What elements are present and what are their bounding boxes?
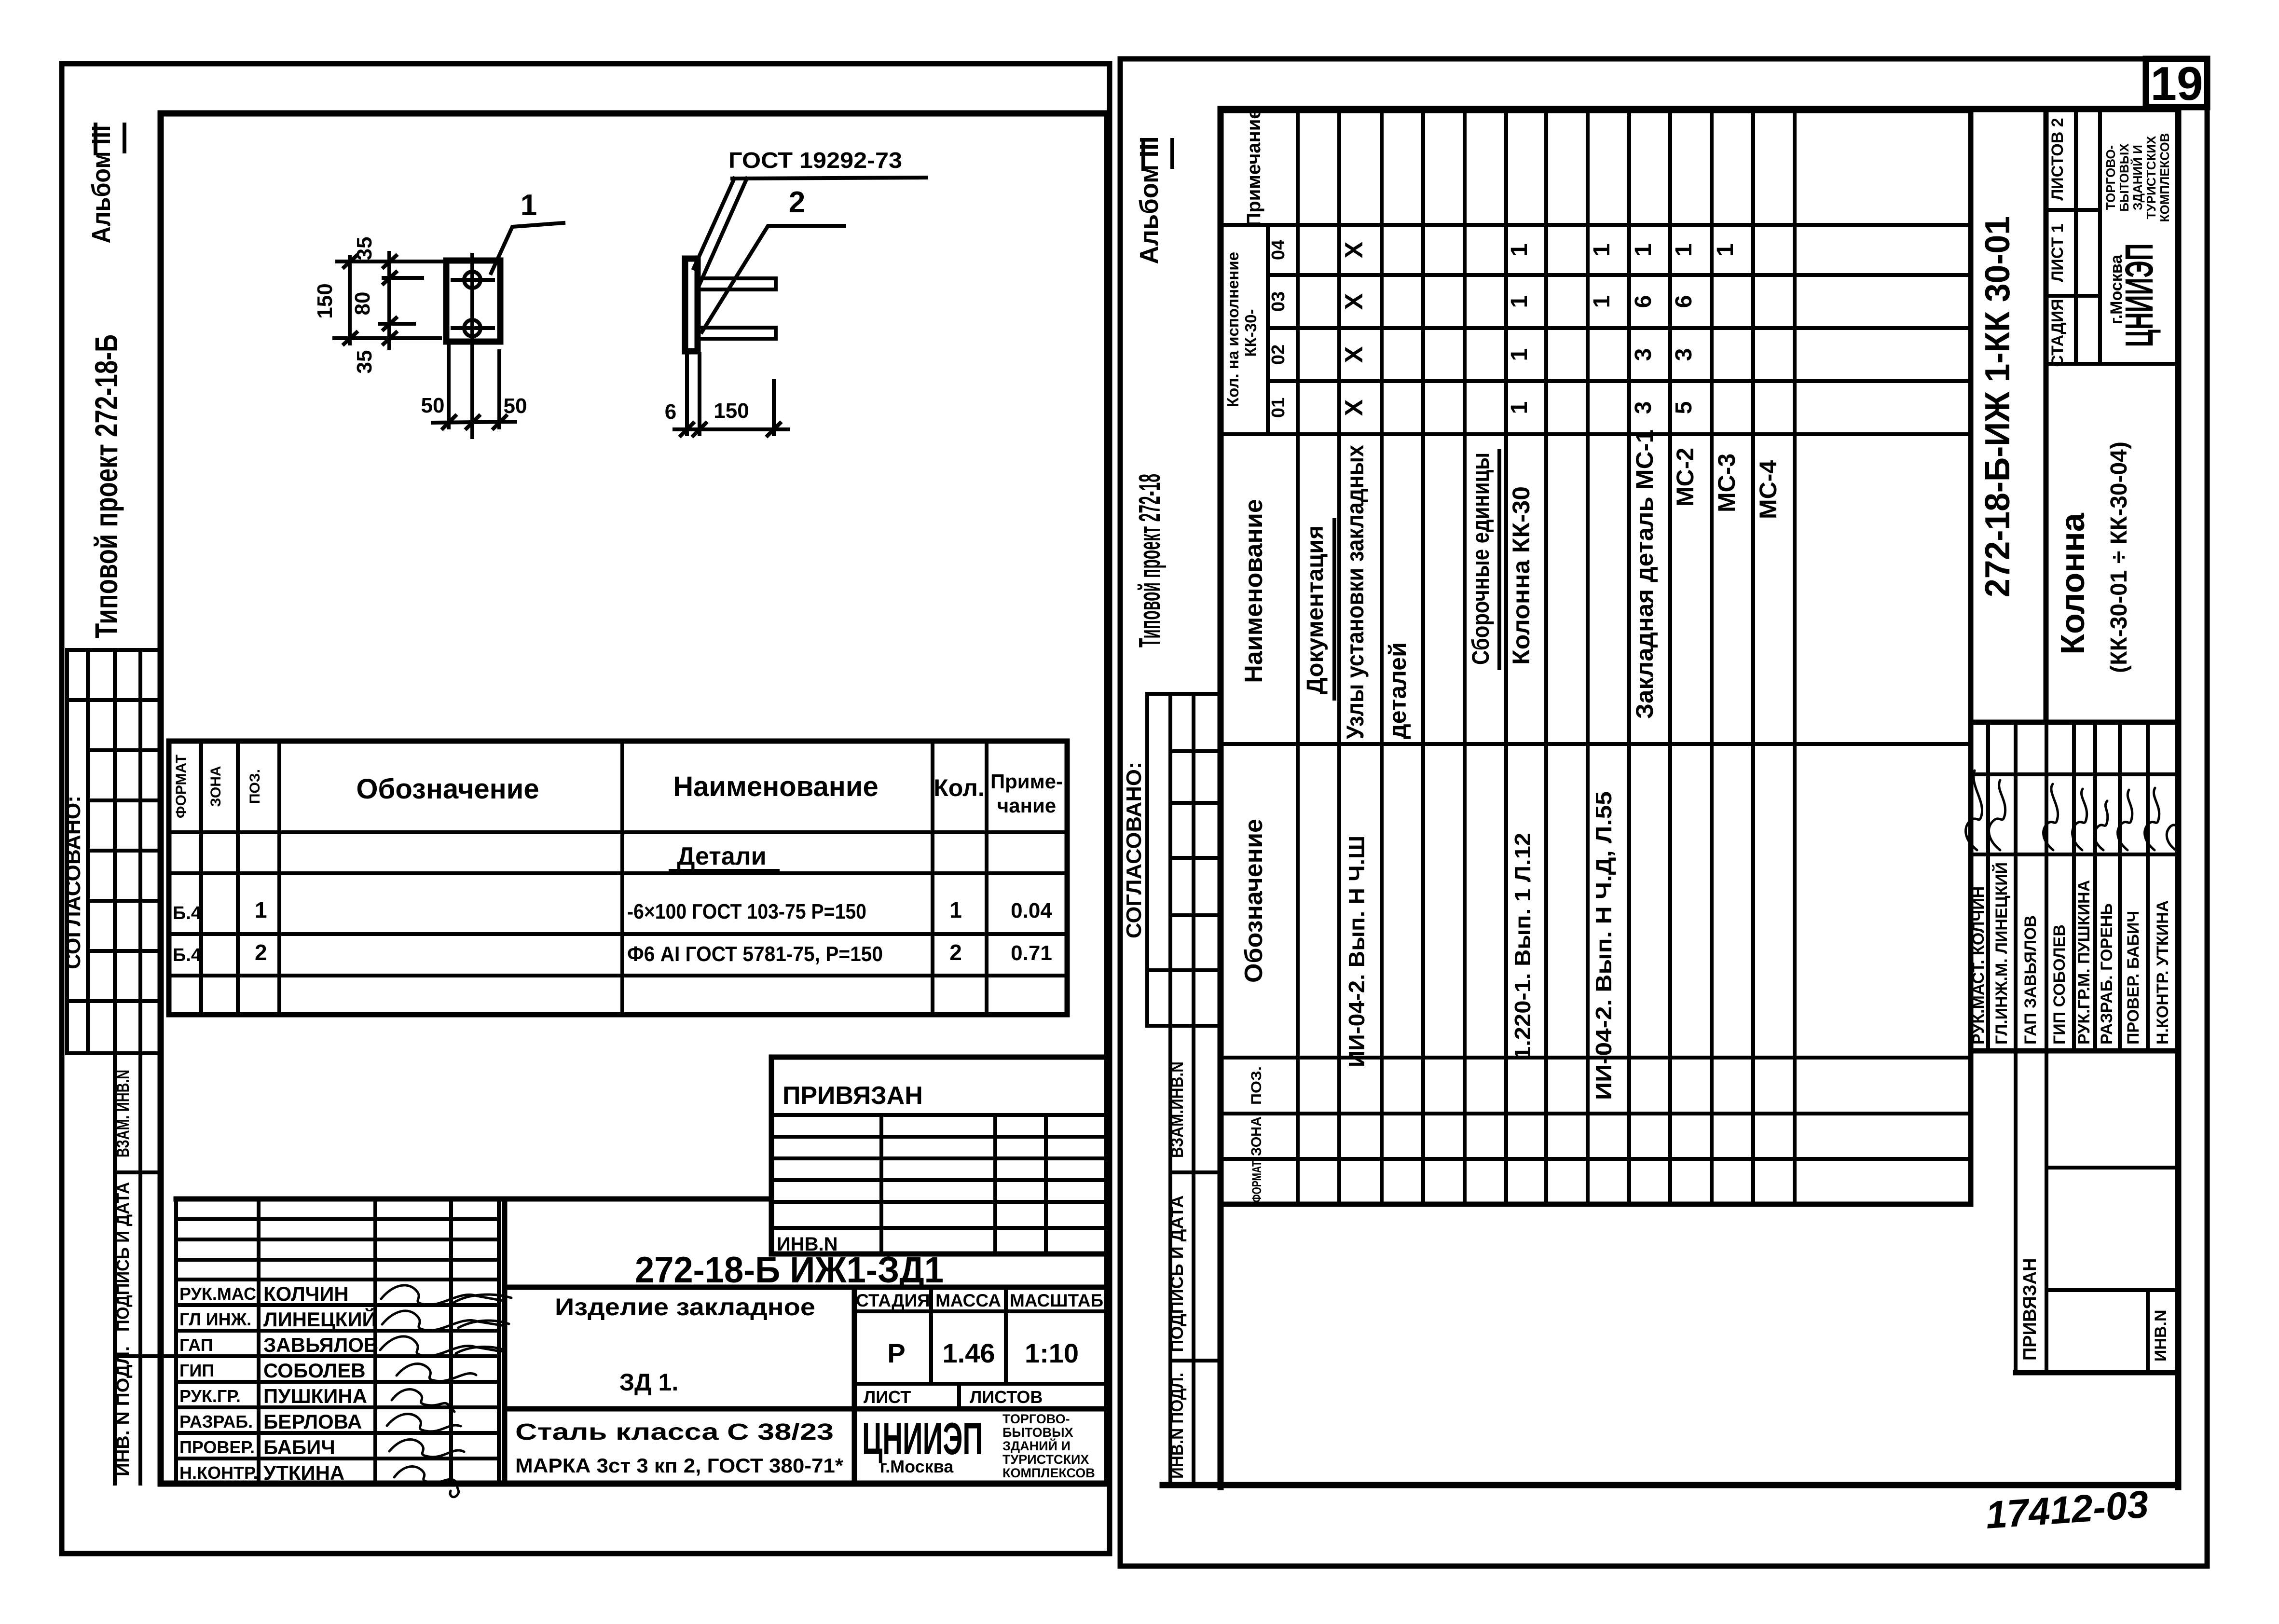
svg-text:Н.КОНТР.: Н.КОНТР. — [179, 1463, 258, 1483]
svg-text:ПРИВЯЗАН: ПРИВЯЗАН — [2020, 1258, 2040, 1361]
svg-text:ЗАВЬЯЛОВ: ЗАВЬЯЛОВ — [263, 1334, 378, 1356]
svg-text:1: 1 — [949, 897, 962, 922]
svg-text:БЫТОВЫХ: БЫТОВЫХ — [2117, 143, 2131, 212]
svg-text:Приме-: Приме- — [990, 770, 1063, 793]
svg-text:СТАДИЯ: СТАДИЯ — [2048, 299, 2067, 367]
svg-text:РУК.МАС.: РУК.МАС. — [179, 1284, 261, 1304]
svg-text:РУК.ГР.М. ПУШКИНА: РУК.ГР.М. ПУШКИНА — [2075, 880, 2093, 1045]
svg-text:X: X — [1340, 346, 1368, 363]
svg-text:Сборочные единицы: Сборочные единицы — [1467, 453, 1494, 665]
svg-text:80: 80 — [351, 292, 374, 316]
svg-text:ФОРМАТ: ФОРМАТ — [173, 755, 189, 818]
svg-text:3: 3 — [1671, 348, 1697, 361]
svg-text:г.Москва: г.Москва — [880, 1457, 954, 1476]
svg-text:ГЛ.ИНЖ.М. ЛИНЕЦКИЙ: ГЛ.ИНЖ.М. ЛИНЕЦКИЙ — [1992, 862, 2011, 1045]
svg-text:1: 1 — [255, 897, 267, 922]
svg-text:2: 2 — [789, 186, 805, 219]
svg-text:ИИ-04-2. Вып. Н Ч.Ш: ИИ-04-2. Вып. Н Ч.Ш — [1344, 836, 1369, 1067]
svg-text:ЗДАНИЙ И: ЗДАНИЙ И — [1002, 1438, 1071, 1453]
svg-text:1: 1 — [521, 189, 537, 222]
svg-text:3: 3 — [1631, 401, 1656, 414]
svg-text:X: X — [1340, 399, 1368, 416]
svg-text:2: 2 — [255, 940, 267, 965]
svg-text:Наименование: Наименование — [1240, 499, 1268, 683]
svg-text:ИНВ. N ПОДЛ.: ИНВ. N ПОДЛ. — [113, 1346, 133, 1476]
svg-text:ТУРИСТСКИХ: ТУРИСТСКИХ — [2144, 136, 2158, 219]
svg-text:БЕРЛОВА: БЕРЛОВА — [263, 1410, 362, 1433]
svg-text:1: 1 — [1671, 244, 1697, 257]
svg-text:ПРОВЕР. БАБИЧ: ПРОВЕР. БАБИЧ — [2124, 911, 2142, 1045]
svg-text:150: 150 — [313, 283, 337, 318]
svg-text:МС-2: МС-2 — [1672, 448, 1699, 507]
svg-text:ЗД 1.: ЗД 1. — [619, 1369, 679, 1396]
svg-text:150: 150 — [714, 399, 749, 423]
svg-text:ПРОВЕР.: ПРОВЕР. — [179, 1437, 255, 1457]
svg-text:1: 1 — [1507, 348, 1532, 361]
svg-text:Колонна: Колонна — [2054, 512, 2091, 655]
svg-text:0.71: 0.71 — [1011, 941, 1052, 965]
svg-text:-6×100 ГОСТ 103-75 Р=150: -6×100 ГОСТ 103-75 Р=150 — [627, 900, 866, 923]
svg-text:РУК.ГР.: РУК.ГР. — [179, 1386, 241, 1406]
svg-text:ПРИВЯЗАН: ПРИВЯЗАН — [783, 1082, 923, 1110]
svg-text:1: 1 — [1589, 244, 1615, 257]
svg-text:Кол.: Кол. — [934, 774, 984, 801]
svg-text:ВЗАМ. ИНВ.N: ВЗАМ. ИНВ.N — [113, 1070, 133, 1157]
svg-text:Кол. на исполнение: Кол. на исполнение — [1224, 252, 1242, 407]
svg-text:КОМПЛЕКСОВ: КОМПЛЕКСОВ — [2157, 133, 2172, 222]
svg-text:1: 1 — [1631, 244, 1656, 257]
svg-text:1: 1 — [1713, 244, 1738, 257]
svg-text:6: 6 — [665, 400, 676, 424]
svg-text:ПОЗ.: ПОЗ. — [1249, 1066, 1264, 1105]
svg-text:Типовой проект 272-18-Б: Типовой проект 272-18-Б — [88, 334, 124, 638]
svg-text:Колонна КК-30: Колонна КК-30 — [1508, 486, 1535, 665]
svg-text:272-18-Б ИЖ1-ЗД1: 272-18-Б ИЖ1-ЗД1 — [635, 1250, 944, 1291]
svg-text:ЛИСТ 1: ЛИСТ 1 — [2048, 223, 2067, 282]
svg-text:ТОРГОВО-: ТОРГОВО- — [1002, 1412, 1070, 1426]
svg-text:КК-30-: КК-30- — [1242, 309, 1260, 357]
svg-text:СТАДИЯ: СТАДИЯ — [856, 1291, 930, 1310]
svg-text:6: 6 — [1671, 295, 1697, 308]
svg-text:КОЛЧИН: КОЛЧИН — [263, 1282, 349, 1305]
svg-text:35: 35 — [353, 237, 376, 261]
svg-text:Альбом III: Альбом III — [1135, 137, 1164, 264]
svg-text:чание: чание — [997, 794, 1056, 817]
svg-text:X: X — [1340, 293, 1368, 310]
svg-text:ГИП: ГИП — [179, 1361, 214, 1380]
svg-text:ФОРМАТ: ФОРМАТ — [1249, 1161, 1264, 1202]
svg-text:МС-4: МС-4 — [1755, 460, 1782, 519]
svg-text:ЛИНЕЦКИЙ: ЛИНЕЦКИЙ — [263, 1307, 377, 1331]
svg-text:ГАП: ГАП — [179, 1335, 213, 1355]
svg-text:1.46: 1.46 — [943, 1338, 995, 1368]
svg-text:ГАП ЗАВЬЯЛОВ: ГАП ЗАВЬЯЛОВ — [2021, 915, 2040, 1045]
svg-text:РАЗРАБ. ГОРЕНЬ: РАЗРАБ. ГОРЕНЬ — [2098, 903, 2116, 1045]
svg-text:г.Москва: г.Москва — [2107, 254, 2126, 324]
svg-text:МС-3: МС-3 — [1713, 454, 1740, 512]
svg-text:Закладная деталь МС-1: Закладная деталь МС-1 — [1631, 429, 1658, 719]
svg-text:50: 50 — [421, 394, 445, 417]
svg-text:2: 2 — [949, 940, 962, 965]
svg-text:СОГЛАСОВАНО:: СОГЛАСОВАНО: — [61, 796, 85, 969]
svg-text:1: 1 — [1507, 295, 1532, 308]
svg-text:ГИП СОБОЛЕВ: ГИП СОБОЛЕВ — [2050, 924, 2069, 1045]
svg-text:деталей: деталей — [1384, 642, 1411, 739]
svg-text:СОГЛАСОВАНО:: СОГЛАСОВАНО: — [1122, 762, 1146, 938]
svg-text:6: 6 — [1631, 295, 1656, 308]
svg-text:ЛИСТ: ЛИСТ — [864, 1387, 911, 1407]
svg-text:(КК-30-01 ÷ КК-30-04): (КК-30-01 ÷ КК-30-04) — [2106, 441, 2132, 673]
svg-text:МАРКА 3ст 3 кп 2, ГОСТ 380-71*: МАРКА 3ст 3 кп 2, ГОСТ 380-71* — [515, 1454, 844, 1477]
svg-text:50: 50 — [504, 394, 527, 418]
svg-text:Наименование: Наименование — [673, 771, 879, 802]
svg-text:Сталь класса С 38/23: Сталь класса С 38/23 — [515, 1419, 834, 1445]
svg-text:ИНВ.N: ИНВ.N — [2152, 1309, 2170, 1362]
svg-text:ПОДПИСЬ И ДАТА: ПОДПИСЬ И ДАТА — [113, 1182, 133, 1332]
svg-text:Б.4: Б.4 — [173, 903, 201, 923]
svg-text:1: 1 — [1507, 401, 1532, 414]
svg-text:ЗОНА: ЗОНА — [208, 766, 224, 807]
svg-text:Н.КОНТР. УТКИНА: Н.КОНТР. УТКИНА — [2154, 900, 2172, 1045]
svg-text:ПУШКИНА: ПУШКИНА — [263, 1385, 367, 1407]
svg-text:ВЗАМ.ИНВ.N: ВЗАМ.ИНВ.N — [1167, 1061, 1187, 1158]
svg-text:БЫТОВЫХ: БЫТОВЫХ — [1002, 1425, 1073, 1440]
svg-text:УТКИНА: УТКИНА — [263, 1461, 344, 1484]
svg-text:Р: Р — [887, 1338, 905, 1368]
svg-text:0.04: 0.04 — [1011, 899, 1052, 922]
svg-text:ЛИСТОВ: ЛИСТОВ — [970, 1387, 1043, 1407]
svg-text:РАЗРАБ.: РАЗРАБ. — [179, 1412, 253, 1431]
svg-text:1: 1 — [1589, 295, 1615, 308]
svg-text:Документация: Документация — [1303, 525, 1328, 694]
svg-text:Типовой проект 272-18: Типовой проект 272-18 — [1133, 474, 1167, 647]
svg-text:Ф6 АI ГОСТ 5781-75, Р=150: Ф6 АI ГОСТ 5781-75, Р=150 — [627, 942, 883, 966]
svg-text:ТУРИСТСКИХ: ТУРИСТСКИХ — [1002, 1452, 1089, 1467]
svg-text:ЗДАНИЙ И: ЗДАНИЙ И — [2130, 145, 2145, 210]
svg-text:Детали: Детали — [677, 842, 766, 870]
svg-text:02: 02 — [1268, 344, 1289, 365]
svg-text:ПОДПИСЬ И ДАТА: ПОДПИСЬ И ДАТА — [1167, 1196, 1187, 1352]
svg-text:ИИ-04-2. Вып. Н Ч.Д, Л.55: ИИ-04-2. Вып. Н Ч.Д, Л.55 — [1591, 791, 1616, 1100]
svg-text:1:10: 1:10 — [1025, 1338, 1079, 1368]
svg-text:Обозначение: Обозначение — [1240, 819, 1268, 983]
svg-text:03: 03 — [1268, 291, 1289, 312]
svg-text:БАБИЧ: БАБИЧ — [263, 1436, 335, 1459]
svg-text:ПОЗ.: ПОЗ. — [247, 769, 263, 804]
svg-text:Изделие закладное: Изделие закладное — [555, 1294, 815, 1321]
svg-text:Б.4: Б.4 — [173, 945, 201, 965]
svg-text:СОБОЛЕВ: СОБОЛЕВ — [263, 1359, 366, 1382]
svg-text:1.220-1. Вып. 1 Л.12: 1.220-1. Вып. 1 Л.12 — [1510, 833, 1535, 1060]
svg-text:Узлы установки закладных: Узлы установки закладных — [1342, 445, 1369, 739]
svg-text:МАССА: МАССА — [935, 1291, 1001, 1310]
svg-text:РУК.МАСТ. КОЛЧИН: РУК.МАСТ. КОЛЧИН — [1969, 886, 1988, 1045]
svg-text:X: X — [1340, 241, 1368, 258]
svg-text:5: 5 — [1671, 401, 1697, 414]
svg-text:3: 3 — [1631, 348, 1656, 361]
svg-text:35: 35 — [353, 350, 376, 374]
svg-text:Альбом III: Альбом III — [87, 125, 116, 244]
svg-text:Примечание: Примечание — [1243, 108, 1264, 226]
svg-text:КОМПЛЕКСОВ: КОМПЛЕКСОВ — [1002, 1466, 1095, 1480]
svg-text:ТОРГОВО-: ТОРГОВО- — [2103, 145, 2118, 210]
svg-text:272-18-Б-ИЖ 1-КК 30-01: 272-18-Б-ИЖ 1-КК 30-01 — [1978, 216, 2017, 597]
svg-text:ЛИСТОВ 2: ЛИСТОВ 2 — [2048, 118, 2067, 200]
svg-text:ИНВ.N ПОДЛ.: ИНВ.N ПОДЛ. — [1167, 1373, 1187, 1479]
svg-text:01: 01 — [1268, 398, 1289, 418]
svg-text:ЗОНА: ЗОНА — [1249, 1116, 1264, 1156]
svg-text:1: 1 — [1507, 244, 1532, 257]
svg-text:Обозначение: Обозначение — [356, 773, 539, 805]
svg-text:04: 04 — [1268, 240, 1289, 260]
svg-text:ГЛ ИНЖ.: ГЛ ИНЖ. — [179, 1309, 251, 1329]
svg-text:19: 19 — [2150, 57, 2203, 110]
svg-text:МАСШТАБ: МАСШТАБ — [1010, 1291, 1103, 1310]
svg-text:ГОСТ 19292-73: ГОСТ 19292-73 — [728, 148, 902, 173]
